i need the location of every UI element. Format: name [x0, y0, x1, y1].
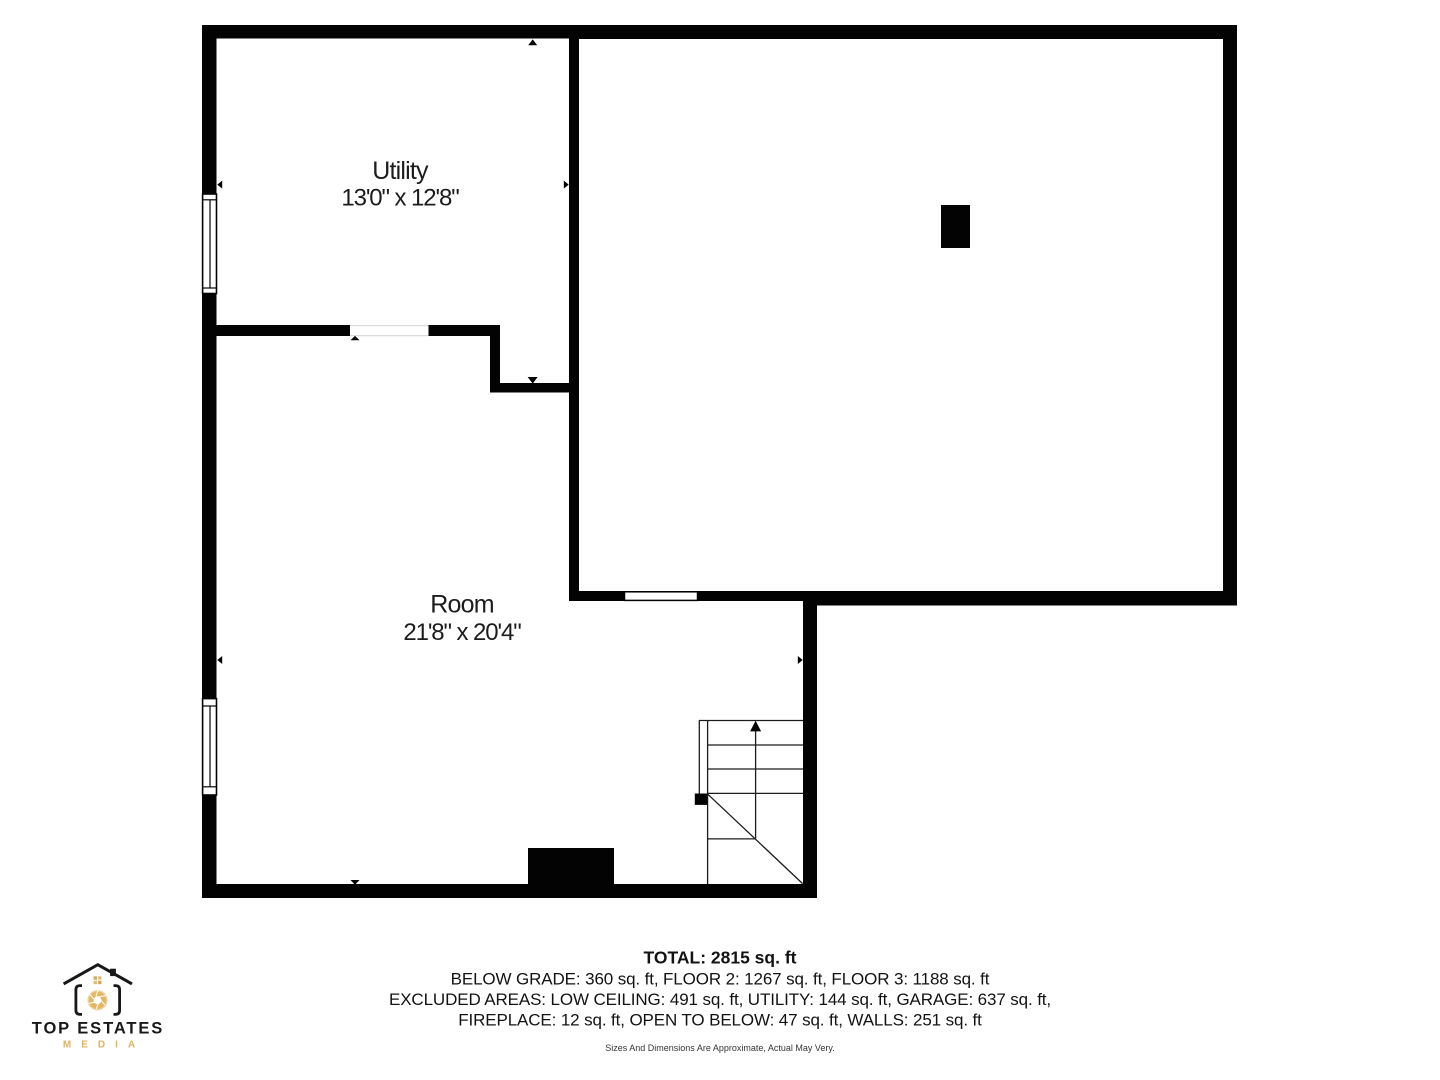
svg-text:BELOW GRADE: 360 sq. ft, FLOOR: BELOW GRADE: 360 sq. ft, FLOOR 2: 1267 s… [451, 970, 990, 989]
svg-text:EXCLUDED AREAS: LOW CEILING: 4: EXCLUDED AREAS: LOW CEILING: 491 sq. ft,… [389, 990, 1051, 1009]
svg-text:Sizes And Dimensions Are Appro: Sizes And Dimensions Are Approximate, Ac… [605, 1043, 834, 1053]
svg-text:TOP ESTATES: TOP ESTATES [32, 1020, 164, 1038]
svg-text:13'0" x 12'8": 13'0" x 12'8" [341, 185, 459, 212]
svg-text:MEDIA: MEDIA [63, 1039, 145, 1050]
svg-text:Utility: Utility [372, 157, 429, 185]
svg-text:Room: Room [430, 591, 494, 619]
svg-text:21'8" x 20'4": 21'8" x 20'4" [403, 619, 521, 646]
svg-text:TOTAL: 2815 sq. ft: TOTAL: 2815 sq. ft [644, 948, 797, 968]
svg-text:FIREPLACE: 12 sq. ft, OPEN TO: FIREPLACE: 12 sq. ft, OPEN TO BELOW: 47 … [458, 1011, 982, 1030]
